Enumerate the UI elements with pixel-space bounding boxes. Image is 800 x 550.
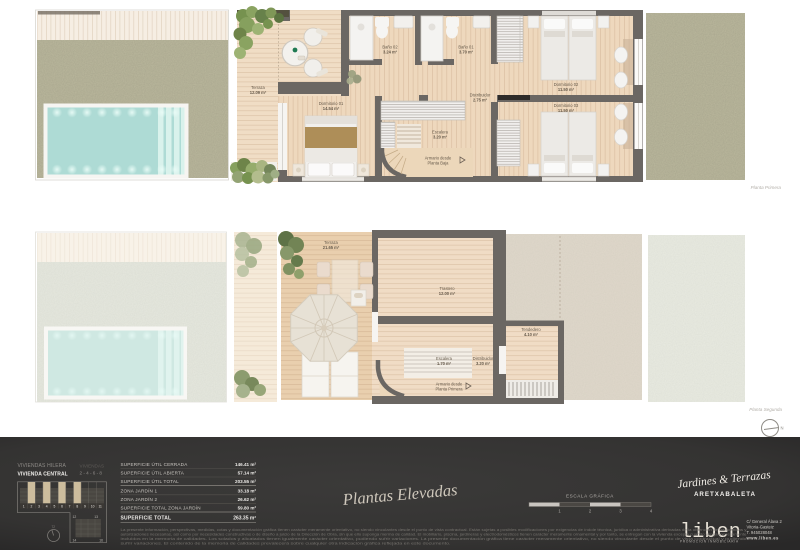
- svg-text:12.09 m²: 12.09 m²: [250, 90, 267, 95]
- svg-text:3.24 m²: 3.24 m²: [383, 50, 398, 55]
- svg-text:VIVIENDAS: VIVIENDAS: [80, 464, 105, 469]
- svg-text:Planta Segunda: Planta Segunda: [749, 407, 782, 412]
- svg-text:Planta Primera: Planta Primera: [435, 387, 463, 392]
- svg-text:SUPERFICIE TOTAL ZONA JARDÍN: SUPERFICIE TOTAL ZONA JARDÍN: [121, 505, 201, 511]
- svg-text:SUPERFICIE ÚTIL CERRADA: SUPERFICIE ÚTIL CERRADA: [121, 461, 189, 467]
- svg-text:Vitoria-Gasteiz: Vitoria-Gasteiz: [747, 525, 774, 530]
- svg-text:1.70 m²: 1.70 m²: [437, 361, 452, 366]
- svg-text:8: 8: [76, 505, 78, 509]
- svg-text:T. 945028048: T. 945028048: [747, 530, 773, 535]
- svg-text:14: 14: [73, 539, 77, 543]
- svg-text:ARETXABALETA: ARETXABALETA: [694, 491, 756, 498]
- svg-text:9: 9: [84, 505, 86, 509]
- svg-text:33.18 m²: 33.18 m²: [238, 489, 257, 494]
- svg-text:59.80 m²: 59.80 m²: [238, 506, 257, 511]
- svg-text:SUPERFICIE ÚTIL TOTAL: SUPERFICIE ÚTIL TOTAL: [121, 478, 180, 484]
- svg-text:ESCALA GRÁFICA: ESCALA GRÁFICA: [566, 493, 614, 499]
- svg-text:26.62 m²: 26.62 m²: [238, 497, 257, 502]
- svg-text:3.20 m²: 3.20 m²: [476, 361, 491, 366]
- svg-text:autorizaciones necesarias, así: autorizaciones necesarias, así como por …: [121, 533, 747, 537]
- svg-text:3.20 m²: 3.20 m²: [433, 135, 448, 140]
- svg-text:SUPERFICIE TOTAL: SUPERFICIE TOTAL: [121, 516, 172, 522]
- svg-text:21.65 m²: 21.65 m²: [323, 245, 340, 250]
- svg-text:sufrir variaciones. El conteni: sufrir variaciones. El contenido de la m…: [121, 542, 451, 546]
- svg-text:VIVIENDAS HILERA: VIVIENDAS HILERA: [18, 463, 67, 469]
- svg-text:6: 6: [61, 505, 63, 509]
- svg-text:16: 16: [99, 539, 103, 543]
- svg-text:www.liben.es: www.liben.es: [746, 536, 780, 541]
- svg-text:263.35 m²: 263.35 m²: [233, 516, 256, 522]
- svg-text:5: 5: [53, 505, 55, 509]
- svg-text:incluidos en la memoria de cal: incluidos en la memoria de calidades. Lo…: [121, 537, 747, 541]
- svg-text:Planta Primera: Planta Primera: [751, 185, 782, 190]
- svg-text:N: N: [781, 426, 784, 431]
- svg-text:146.41 m²: 146.41 m²: [235, 462, 256, 467]
- svg-text:SUPERFICIE ÚTIL ABIERTA: SUPERFICIE ÚTIL ABIERTA: [121, 470, 185, 476]
- svg-text:57.14 m²: 57.14 m²: [238, 471, 257, 476]
- svg-text:La presente información, persp: La presente información, perspectivas, m…: [121, 528, 747, 532]
- svg-text:4: 4: [46, 505, 48, 509]
- svg-text:72: 72: [52, 525, 56, 529]
- svg-text:1: 1: [23, 505, 25, 509]
- svg-text:14.54 m²: 14.54 m²: [323, 106, 340, 111]
- svg-text:ZONA JARDÍN 1: ZONA JARDÍN 1: [121, 488, 158, 494]
- svg-text:12.00 m²: 12.00 m²: [439, 291, 456, 296]
- svg-text:3.70 m²: 3.70 m²: [459, 50, 474, 55]
- svg-text:12: 12: [73, 515, 77, 519]
- svg-text:VIVIENDA CENTRAL: VIVIENDA CENTRAL: [18, 472, 68, 478]
- svg-text:10: 10: [91, 505, 95, 509]
- svg-text:11.50 m²: 11.50 m²: [558, 87, 575, 92]
- svg-text:Planta Baja: Planta Baja: [428, 161, 450, 166]
- svg-text:2: 2: [30, 505, 32, 509]
- svg-text:13: 13: [94, 515, 98, 519]
- svg-text:11: 11: [98, 505, 102, 509]
- svg-text:203.55 m²: 203.55 m²: [235, 479, 256, 484]
- svg-text:C/ General Álava 2: C/ General Álava 2: [747, 519, 783, 524]
- svg-text:4.10 m²: 4.10 m²: [524, 332, 539, 337]
- svg-text:2.75 m²: 2.75 m²: [473, 98, 488, 103]
- svg-text:3: 3: [38, 505, 40, 509]
- svg-text:7: 7: [69, 505, 71, 509]
- svg-text:11.50 m²: 11.50 m²: [558, 108, 575, 113]
- svg-text:2 - 4 - 6 - 8: 2 - 4 - 6 - 8: [80, 471, 103, 476]
- svg-text:ZONA JARDÍN 2: ZONA JARDÍN 2: [121, 496, 158, 502]
